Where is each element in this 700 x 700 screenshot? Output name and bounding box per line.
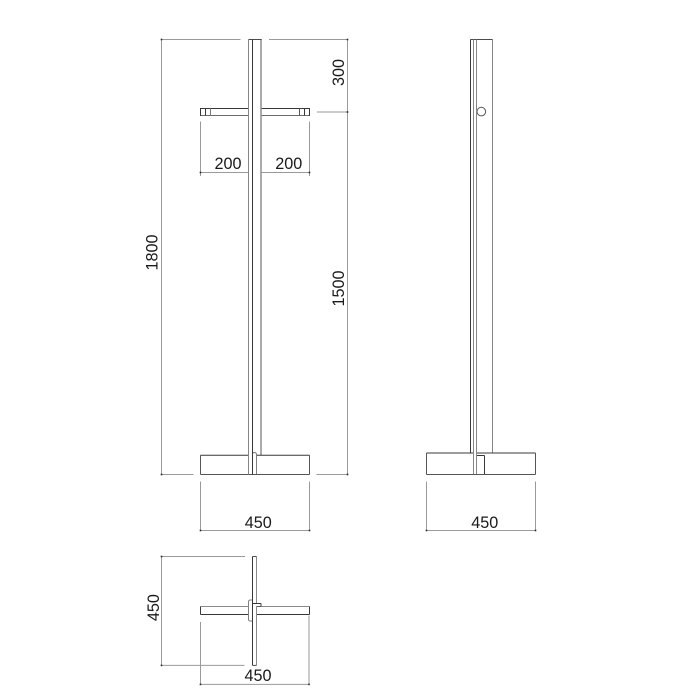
svg-text:1800: 1800 bbox=[144, 234, 162, 270]
svg-text:1500: 1500 bbox=[330, 270, 348, 306]
svg-text:450: 450 bbox=[471, 514, 498, 532]
svg-text:450: 450 bbox=[145, 594, 163, 621]
svg-text:200: 200 bbox=[214, 155, 241, 173]
svg-text:200: 200 bbox=[275, 155, 302, 173]
svg-text:450: 450 bbox=[244, 667, 271, 685]
svg-text:300: 300 bbox=[330, 59, 348, 86]
svg-text:450: 450 bbox=[245, 514, 272, 532]
